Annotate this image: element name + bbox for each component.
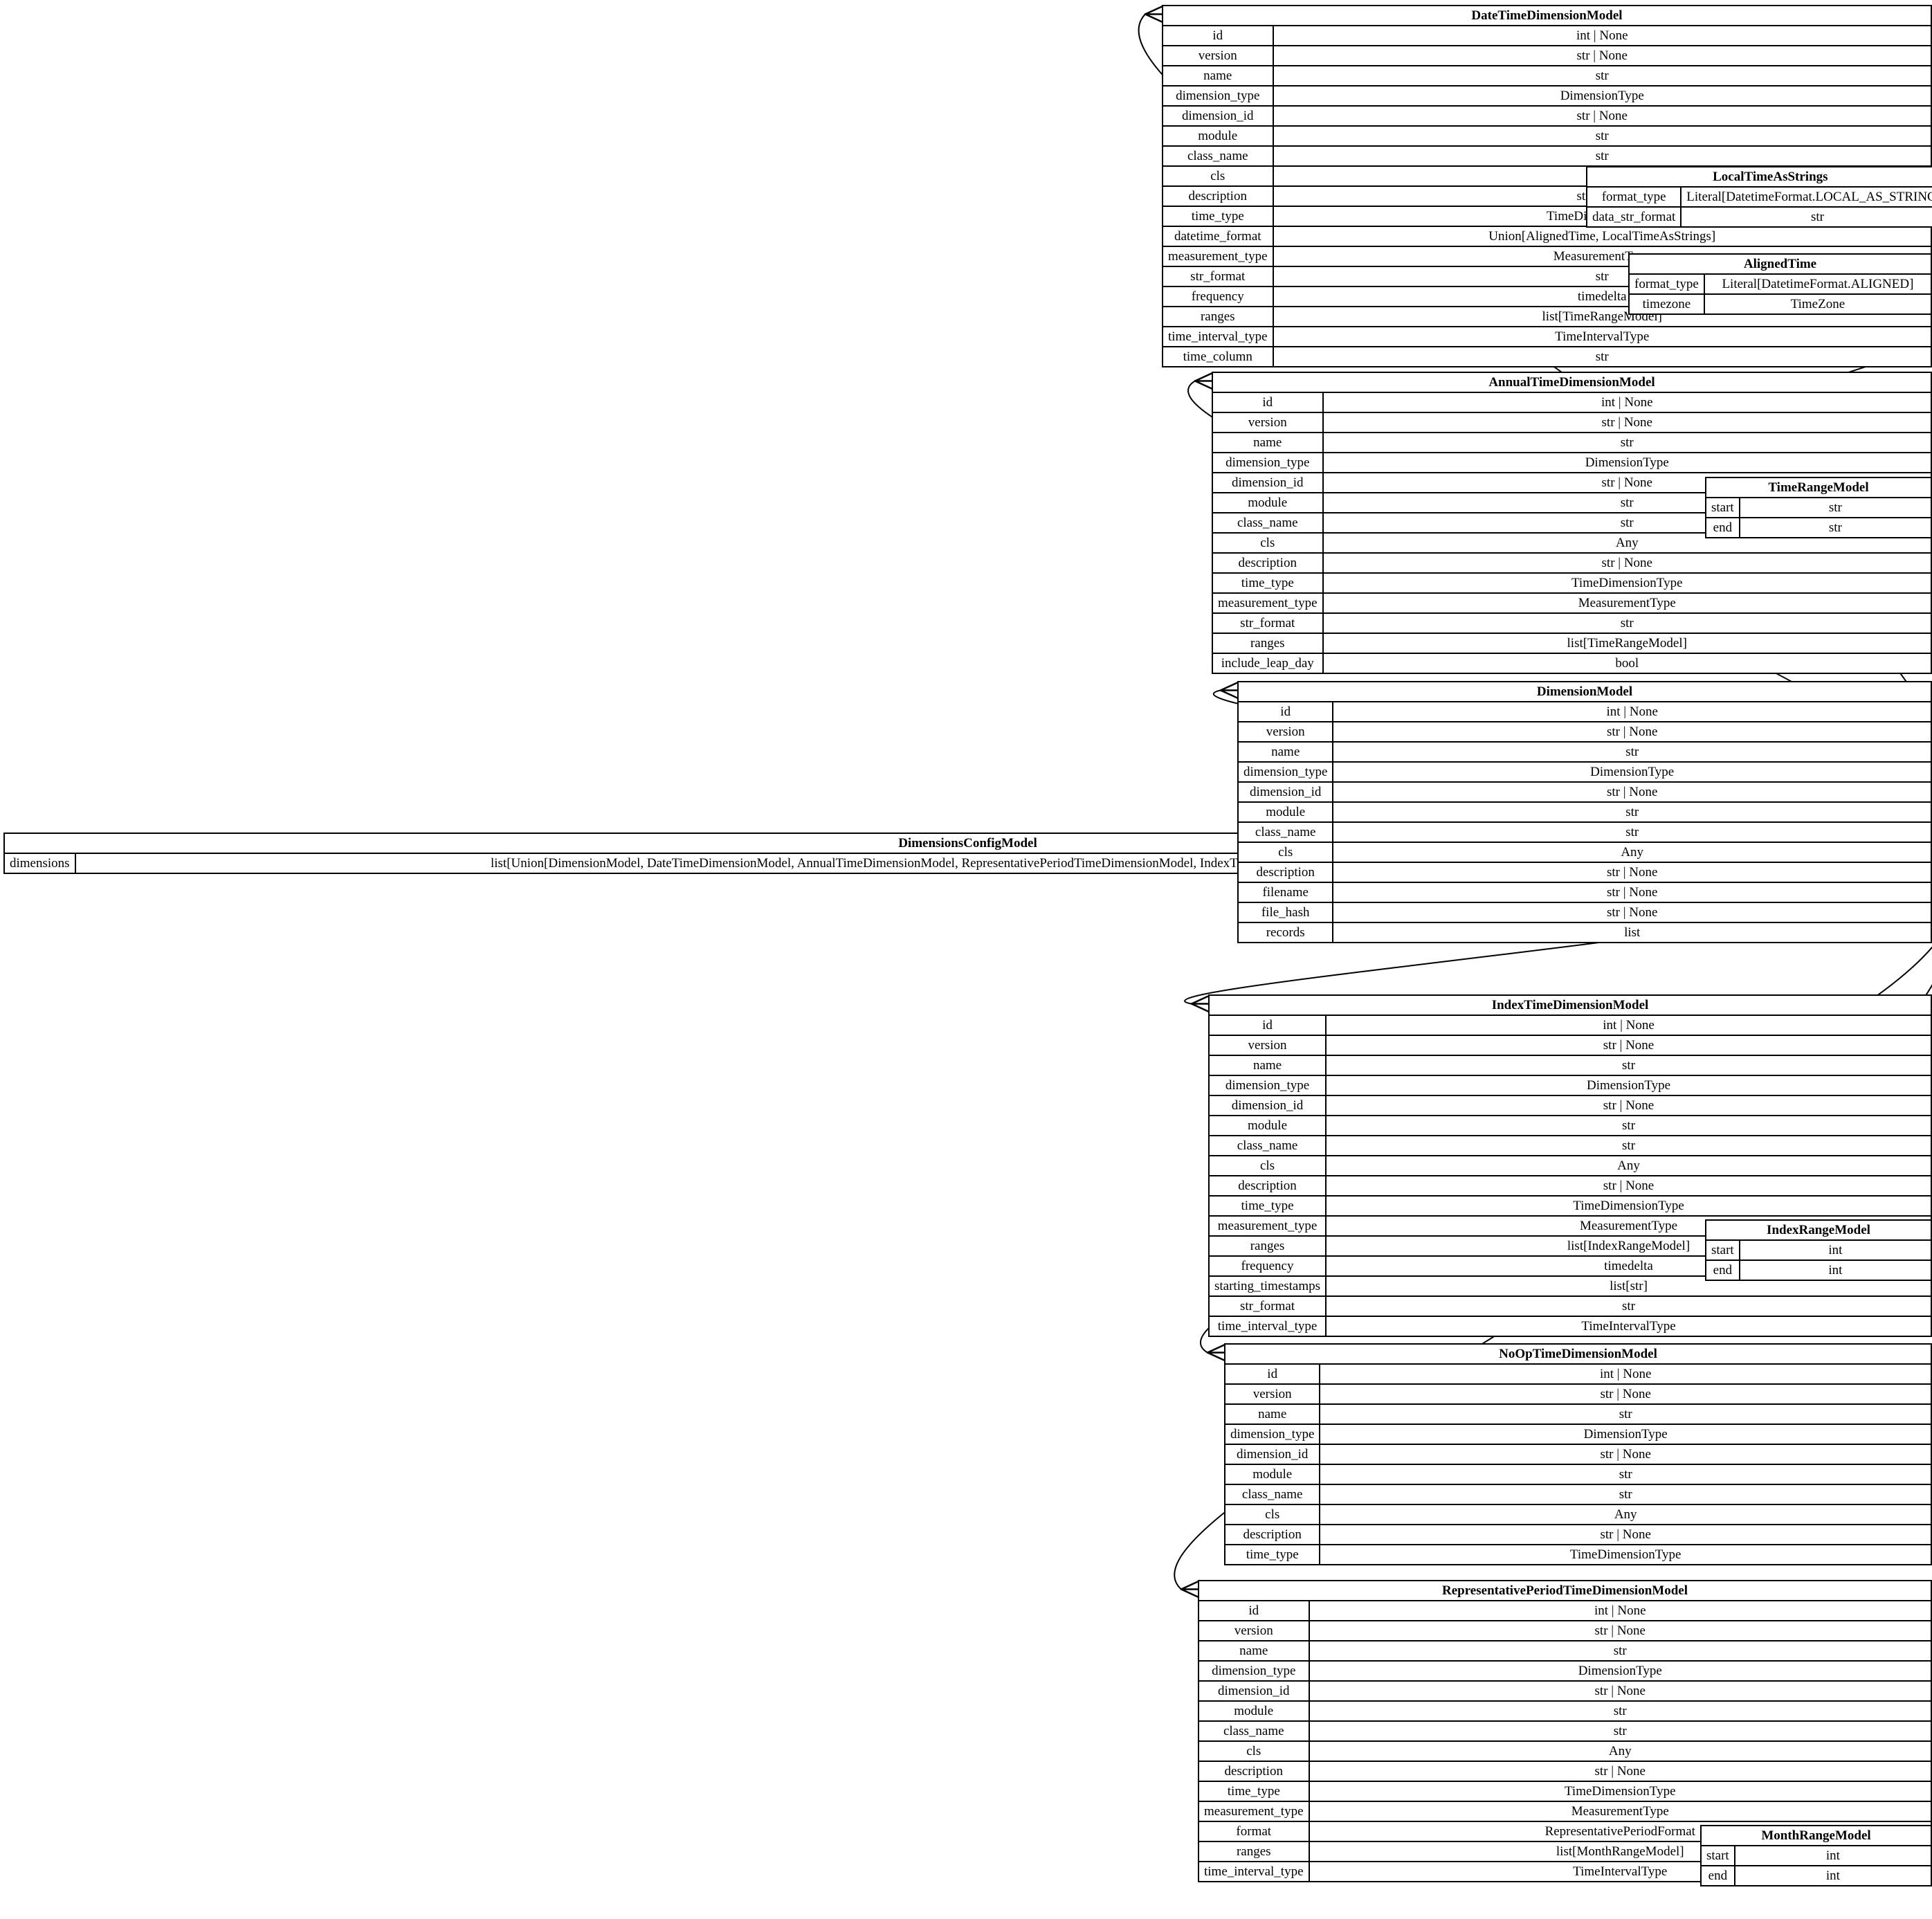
field-name: starting_timestamps [1210, 1276, 1326, 1296]
field-name: start [1706, 1240, 1740, 1260]
field-type: str | None [1333, 882, 1931, 902]
field-type: str [1320, 1404, 1931, 1424]
field-row-MonthRangeModel-start: startint [1702, 1846, 1931, 1866]
field-type: str | None [1309, 1621, 1931, 1641]
field-row-DateTimeDimensionModel-dimension_id: dimension_idstr | None [1163, 106, 1931, 126]
field-row-IndexTimeDimensionModel-module: modulestr [1210, 1116, 1931, 1136]
field-name: version [1239, 722, 1333, 742]
field-row-IndexTimeDimensionModel-dimension_type: dimension_typeDimensionType [1210, 1075, 1931, 1095]
field-name: end [1702, 1866, 1735, 1885]
table-title-AlignedTime: AlignedTime [1630, 255, 1931, 273]
table-TimeRangeModel: TimeRangeModelstartstrendstr [1705, 477, 1932, 538]
field-name: time_type [1213, 573, 1323, 593]
field-name: dimension_id [1199, 1681, 1309, 1701]
table-title-MonthRangeModel: MonthRangeModel [1702, 1826, 1931, 1845]
field-row-NoOpTimeDimensionModel-dimension_id: dimension_idstr | None [1225, 1444, 1931, 1464]
field-row-RepresentativePeriodTimeDimensionModel-cls: clsAny [1199, 1741, 1931, 1761]
crow-marker [1221, 683, 1237, 691]
field-row-DateTimeDimensionModel-version: versionstr | None [1163, 46, 1931, 66]
field-type: str [1309, 1721, 1931, 1741]
field-name: format_type [1587, 187, 1681, 207]
field-type: str | None [1320, 1384, 1931, 1404]
field-row-RepresentativePeriodTimeDimensionModel-class_name: class_namestr [1199, 1721, 1931, 1741]
crow-marker [1221, 691, 1237, 698]
field-row-RepresentativePeriodTimeDimensionModel-dimension_id: dimension_idstr | None [1199, 1681, 1931, 1701]
field-name: str_format [1213, 613, 1323, 633]
field-name: time_type [1199, 1781, 1309, 1801]
field-type: DimensionType [1320, 1424, 1931, 1444]
field-type: str [1323, 433, 1931, 453]
field-name: description [1213, 553, 1323, 573]
field-name: dimension_id [1163, 106, 1273, 126]
field-name: dimension_type [1163, 86, 1273, 106]
field-name: ranges [1210, 1236, 1326, 1256]
field-name: data_str_format [1587, 207, 1681, 226]
field-type: int [1740, 1240, 1931, 1260]
field-row-AnnualTimeDimensionModel-name: namestr [1213, 433, 1931, 453]
field-type: str [1320, 1484, 1931, 1504]
field-row-NoOpTimeDimensionModel-version: versionstr | None [1225, 1384, 1931, 1404]
field-type: TimeZone [1704, 294, 1931, 313]
field-name: time_type [1210, 1196, 1326, 1216]
field-type: Any [1320, 1504, 1931, 1525]
table-fields-TimeRangeModel: startstrendstr [1706, 497, 1931, 537]
table-LocalTimeAsStrings: LocalTimeAsStringsformat_typeLiteral[Dat… [1586, 166, 1932, 228]
table-fields-MonthRangeModel: startintendint [1702, 1845, 1931, 1885]
field-type: DimensionType [1273, 86, 1931, 106]
table-fields-IndexTimeDimensionModel: idint | Noneversionstr | Nonenamestrdime… [1210, 1015, 1931, 1336]
field-row-DimensionModel-id: idint | None [1239, 702, 1931, 722]
field-type: int [1740, 1260, 1931, 1280]
field-row-AnnualTimeDimensionModel-ranges: rangeslist[TimeRangeModel] [1213, 633, 1931, 653]
field-name: time_type [1163, 206, 1273, 226]
field-row-DateTimeDimensionModel-datetime_format: datetime_formatUnion[AlignedTime, LocalT… [1163, 226, 1931, 246]
field-type: Any [1309, 1741, 1931, 1761]
field-type: TimeIntervalType [1273, 327, 1931, 347]
field-type: str [1273, 347, 1931, 366]
field-name: time_interval_type [1199, 1862, 1309, 1881]
field-row-AnnualTimeDimensionModel-str_format: str_formatstr [1213, 613, 1931, 633]
field-row-IndexTimeDimensionModel-str_format: str_formatstr [1210, 1296, 1931, 1316]
field-type: list [1333, 922, 1931, 942]
field-row-NoOpTimeDimensionModel-cls: clsAny [1225, 1504, 1931, 1525]
field-name: version [1210, 1035, 1326, 1055]
field-name: dimension_id [1225, 1444, 1320, 1464]
table-AlignedTime: AlignedTimeformat_typeLiteral[DatetimeFo… [1628, 253, 1932, 315]
field-name: dimension_type [1213, 453, 1323, 473]
field-type: MeasurementType [1323, 593, 1931, 613]
field-name: class_name [1213, 513, 1323, 533]
field-type: DimensionType [1326, 1075, 1931, 1095]
table-NoOpTimeDimensionModel: NoOpTimeDimensionModelidint | Noneversio… [1224, 1343, 1932, 1565]
crow-marker [1181, 1582, 1198, 1590]
field-name: class_name [1225, 1484, 1320, 1504]
table-fields-NoOpTimeDimensionModel: idint | Noneversionstr | Nonenamestrdime… [1225, 1363, 1931, 1564]
field-row-RepresentativePeriodTimeDimensionModel-id: idint | None [1199, 1601, 1931, 1621]
field-name: measurement_type [1163, 246, 1273, 266]
field-row-DateTimeDimensionModel-module: modulestr [1163, 126, 1931, 146]
field-type: str | None [1320, 1444, 1931, 1464]
table-fields-DimensionModel: idint | Noneversionstr | Nonenamestrdime… [1239, 701, 1931, 942]
field-name: version [1213, 412, 1323, 433]
crow-marker [1207, 1345, 1224, 1353]
field-type: str [1273, 146, 1931, 166]
field-row-NoOpTimeDimensionModel-dimension_type: dimension_typeDimensionType [1225, 1424, 1931, 1444]
field-row-AnnualTimeDimensionModel-time_type: time_typeTimeDimensionType [1213, 573, 1931, 593]
field-row-NoOpTimeDimensionModel-time_type: time_typeTimeDimensionType [1225, 1545, 1931, 1564]
field-name: cls [1239, 842, 1333, 862]
field-type: str [1326, 1116, 1931, 1136]
field-name: module [1199, 1701, 1309, 1721]
field-type: Literal[DatetimeFormat.LOCAL_AS_STRINGS] [1681, 187, 1932, 207]
field-type: int [1735, 1846, 1931, 1866]
field-name: records [1239, 922, 1333, 942]
field-type: str [1309, 1641, 1931, 1661]
field-name: str_format [1210, 1296, 1326, 1316]
table-title-NoOpTimeDimensionModel: NoOpTimeDimensionModel [1225, 1345, 1931, 1363]
field-row-NoOpTimeDimensionModel-module: modulestr [1225, 1464, 1931, 1484]
field-name: dimension_type [1210, 1075, 1326, 1095]
field-row-RepresentativePeriodTimeDimensionModel-time_type: time_typeTimeDimensionType [1199, 1781, 1931, 1801]
field-row-NoOpTimeDimensionModel-class_name: class_namestr [1225, 1484, 1931, 1504]
field-row-AnnualTimeDimensionModel-include_leap_day: include_leap_daybool [1213, 653, 1931, 673]
field-type: str | None [1323, 412, 1931, 433]
field-type: str | None [1333, 722, 1931, 742]
field-type: int | None [1326, 1015, 1931, 1035]
field-type: int | None [1323, 392, 1931, 412]
field-row-DimensionModel-module: modulestr [1239, 802, 1931, 822]
field-type: int | None [1320, 1364, 1931, 1384]
field-name: name [1239, 742, 1333, 762]
field-row-IndexTimeDimensionModel-cls: clsAny [1210, 1156, 1931, 1176]
field-row-DateTimeDimensionModel-time_column: time_columnstr [1163, 347, 1931, 366]
field-name: class_name [1199, 1721, 1309, 1741]
field-name: cls [1225, 1504, 1320, 1525]
field-type: DimensionType [1323, 453, 1931, 473]
field-type: str | None [1320, 1525, 1931, 1545]
field-type: str [1681, 207, 1932, 226]
field-type: str | None [1326, 1035, 1931, 1055]
field-row-RepresentativePeriodTimeDimensionModel-measurement_type: measurement_typeMeasurementType [1199, 1801, 1931, 1821]
field-type: str [1333, 802, 1931, 822]
field-name: version [1163, 46, 1273, 66]
field-type: str [1333, 822, 1931, 842]
table-title-DimensionModel: DimensionModel [1239, 682, 1931, 701]
table-title-LocalTimeAsStrings: LocalTimeAsStrings [1587, 167, 1932, 186]
field-row-DateTimeDimensionModel-time_interval_type: time_interval_typeTimeIntervalType [1163, 327, 1931, 347]
field-type: DimensionType [1333, 762, 1931, 782]
field-name: datetime_format [1163, 226, 1273, 246]
table-IndexRangeModel: IndexRangeModelstartintendint [1705, 1219, 1932, 1281]
field-row-DimensionModel-version: versionstr | None [1239, 722, 1931, 742]
table-IndexTimeDimensionModel: IndexTimeDimensionModelidint | Noneversi… [1208, 994, 1932, 1337]
field-name: time_interval_type [1163, 327, 1273, 347]
table-title-RepresentativePeriodTimeDimensionModel: RepresentativePeriodTimeDimensionModel [1199, 1581, 1931, 1600]
field-row-DateTimeDimensionModel-id: idint | None [1163, 26, 1931, 46]
field-type: str [1333, 742, 1931, 762]
field-type: str | None [1273, 46, 1931, 66]
field-row-RepresentativePeriodTimeDimensionModel-dimension_type: dimension_typeDimensionType [1199, 1661, 1931, 1681]
field-row-AlignedTime-timezone: timezoneTimeZone [1630, 294, 1931, 313]
field-name: timezone [1630, 294, 1704, 313]
field-name: cls [1210, 1156, 1326, 1176]
field-row-AlignedTime-format_type: format_typeLiteral[DatetimeFormat.ALIGNE… [1630, 274, 1931, 294]
field-name: module [1239, 802, 1333, 822]
field-type: str | None [1323, 553, 1931, 573]
field-name: dimension_type [1199, 1661, 1309, 1681]
field-name: module [1163, 126, 1273, 146]
field-name: dimension_id [1239, 782, 1333, 802]
field-name: file_hash [1239, 902, 1333, 922]
field-row-NoOpTimeDimensionModel-description: descriptionstr | None [1225, 1525, 1931, 1545]
field-row-AnnualTimeDimensionModel-dimension_type: dimension_typeDimensionType [1213, 453, 1931, 473]
field-name: ranges [1163, 307, 1273, 327]
field-row-DimensionModel-records: recordslist [1239, 922, 1931, 942]
field-name: id [1210, 1015, 1326, 1035]
field-name: end [1706, 1260, 1740, 1280]
field-type: str [1740, 498, 1931, 518]
field-type: TimeDimensionType [1309, 1781, 1931, 1801]
field-row-DimensionModel-cls: clsAny [1239, 842, 1931, 862]
field-type: str | None [1326, 1176, 1931, 1196]
field-row-DateTimeDimensionModel-name: namestr [1163, 66, 1931, 86]
field-row-DimensionModel-class_name: class_namestr [1239, 822, 1931, 842]
field-name: dimension_id [1210, 1095, 1326, 1116]
field-name: measurement_type [1213, 593, 1323, 613]
field-type: str [1320, 1464, 1931, 1484]
field-type: str | None [1273, 106, 1931, 126]
field-name: filename [1239, 882, 1333, 902]
table-title-AnnualTimeDimensionModel: AnnualTimeDimensionModel [1213, 373, 1931, 392]
field-type: DimensionType [1309, 1661, 1931, 1681]
field-row-DimensionModel-name: namestr [1239, 742, 1931, 762]
field-row-LocalTimeAsStrings-data_str_format: data_str_formatstr [1587, 207, 1932, 226]
field-row-NoOpTimeDimensionModel-name: namestr [1225, 1404, 1931, 1424]
field-name: time_column [1163, 347, 1273, 366]
field-row-AnnualTimeDimensionModel-id: idint | None [1213, 392, 1931, 412]
field-row-IndexTimeDimensionModel-name: namestr [1210, 1055, 1931, 1075]
field-name: dimensions [5, 853, 75, 873]
field-type: str [1273, 126, 1931, 146]
field-name: str_format [1163, 266, 1273, 287]
field-name: id [1163, 26, 1273, 46]
field-name: end [1706, 518, 1740, 537]
field-type: str | None [1326, 1095, 1931, 1116]
field-name: module [1213, 493, 1323, 513]
field-row-IndexTimeDimensionModel-version: versionstr | None [1210, 1035, 1931, 1055]
field-row-DimensionModel-dimension_type: dimension_typeDimensionType [1239, 762, 1931, 782]
field-row-NoOpTimeDimensionModel-id: idint | None [1225, 1364, 1931, 1384]
field-name: dimension_type [1225, 1424, 1320, 1444]
field-name: description [1239, 862, 1333, 882]
field-type: int | None [1309, 1601, 1931, 1621]
crow-marker [1145, 7, 1162, 15]
crow-marker [1181, 1590, 1198, 1597]
field-type: Union[AlignedTime, LocalTimeAsStrings] [1273, 226, 1931, 246]
field-name: name [1199, 1641, 1309, 1661]
field-name: time_type [1225, 1545, 1320, 1564]
field-name: cls [1213, 533, 1323, 553]
field-name: class_name [1239, 822, 1333, 842]
field-row-LocalTimeAsStrings-format_type: format_typeLiteral[DatetimeFormat.LOCAL_… [1587, 187, 1932, 207]
field-type: str [1323, 613, 1931, 633]
field-name: name [1210, 1055, 1326, 1075]
field-name: class_name [1163, 146, 1273, 166]
crow-marker [1192, 1004, 1208, 1012]
field-row-IndexTimeDimensionModel-description: descriptionstr | None [1210, 1176, 1931, 1196]
field-type: TimeDimensionType [1323, 573, 1931, 593]
field-row-DimensionModel-dimension_id: dimension_idstr | None [1239, 782, 1931, 802]
field-type: int | None [1333, 702, 1931, 722]
field-name: start [1706, 498, 1740, 518]
field-type: str | None [1333, 902, 1931, 922]
crow-marker [1192, 997, 1208, 1004]
field-row-RepresentativePeriodTimeDimensionModel-name: namestr [1199, 1641, 1931, 1661]
table-title-TimeRangeModel: TimeRangeModel [1706, 478, 1931, 497]
field-row-DateTimeDimensionModel-dimension_type: dimension_typeDimensionType [1163, 86, 1931, 106]
field-row-IndexRangeModel-end: endint [1706, 1260, 1931, 1280]
field-name: ranges [1199, 1841, 1309, 1862]
field-type: TimeIntervalType [1326, 1316, 1931, 1336]
field-name: class_name [1210, 1136, 1326, 1156]
field-row-TimeRangeModel-end: endstr [1706, 518, 1931, 537]
field-row-AnnualTimeDimensionModel-version: versionstr | None [1213, 412, 1931, 433]
field-name: start [1702, 1846, 1735, 1866]
field-row-IndexTimeDimensionModel-id: idint | None [1210, 1015, 1931, 1035]
field-name: module [1210, 1116, 1326, 1136]
field-type: str [1326, 1296, 1931, 1316]
field-name: dimension_type [1239, 762, 1333, 782]
table-title-DateTimeDimensionModel: DateTimeDimensionModel [1163, 6, 1931, 25]
field-name: measurement_type [1199, 1801, 1309, 1821]
field-type: bool [1323, 653, 1931, 673]
field-type: str | None [1333, 782, 1931, 802]
field-name: id [1225, 1364, 1320, 1384]
field-type: str [1740, 518, 1931, 537]
field-name: id [1199, 1601, 1309, 1621]
field-name: description [1225, 1525, 1320, 1545]
field-row-AnnualTimeDimensionModel-measurement_type: measurement_typeMeasurementType [1213, 593, 1931, 613]
field-type: Literal[DatetimeFormat.ALIGNED] [1704, 274, 1931, 294]
field-type: str [1326, 1055, 1931, 1075]
field-type: int | None [1273, 26, 1931, 46]
table-title-IndexRangeModel: IndexRangeModel [1706, 1221, 1931, 1239]
field-name: frequency [1210, 1256, 1326, 1276]
field-name: frequency [1163, 287, 1273, 307]
table-title-IndexTimeDimensionModel: IndexTimeDimensionModel [1210, 996, 1931, 1015]
field-type: Any [1333, 842, 1931, 862]
field-row-MonthRangeModel-end: endint [1702, 1866, 1931, 1885]
table-fields-IndexRangeModel: startintendint [1706, 1239, 1931, 1280]
table-MonthRangeModel: MonthRangeModelstartintendint [1700, 1825, 1932, 1886]
field-name: measurement_type [1210, 1216, 1326, 1236]
field-row-RepresentativePeriodTimeDimensionModel-description: descriptionstr | None [1199, 1761, 1931, 1781]
crow-marker [1195, 374, 1212, 381]
crow-marker [1195, 381, 1212, 389]
table-fields-AlignedTime: format_typeLiteral[DatetimeFormat.ALIGNE… [1630, 273, 1931, 313]
field-name: time_interval_type [1210, 1316, 1326, 1336]
field-row-DateTimeDimensionModel-class_name: class_namestr [1163, 146, 1931, 166]
field-row-IndexTimeDimensionModel-dimension_id: dimension_idstr | None [1210, 1095, 1931, 1116]
field-type: str | None [1309, 1761, 1931, 1781]
field-row-RepresentativePeriodTimeDimensionModel-module: modulestr [1199, 1701, 1931, 1721]
field-type: TimeDimensionType [1326, 1196, 1931, 1216]
field-name: id [1213, 392, 1323, 412]
field-name: module [1225, 1464, 1320, 1484]
field-row-IndexTimeDimensionModel-class_name: class_namestr [1210, 1136, 1931, 1156]
field-row-IndexTimeDimensionModel-time_type: time_typeTimeDimensionType [1210, 1196, 1931, 1216]
field-name: include_leap_day [1213, 653, 1323, 673]
field-name: id [1239, 702, 1333, 722]
field-type: TimeDimensionType [1320, 1545, 1931, 1564]
table-DimensionModel: DimensionModelidint | Noneversionstr | N… [1237, 681, 1932, 943]
field-name: description [1199, 1761, 1309, 1781]
field-name: name [1213, 433, 1323, 453]
field-name: cls [1199, 1741, 1309, 1761]
field-name: description [1163, 186, 1273, 206]
field-row-DimensionModel-file_hash: file_hashstr | None [1239, 902, 1931, 922]
field-type: int [1735, 1866, 1931, 1885]
table-fields-LocalTimeAsStrings: format_typeLiteral[DatetimeFormat.LOCAL_… [1587, 186, 1932, 226]
field-name: dimension_id [1213, 473, 1323, 493]
crow-marker [1145, 15, 1162, 22]
field-row-DimensionModel-description: descriptionstr | None [1239, 862, 1931, 882]
field-name: name [1225, 1404, 1320, 1424]
field-row-TimeRangeModel-start: startstr [1706, 498, 1931, 518]
field-name: version [1199, 1621, 1309, 1641]
field-type: Any [1326, 1156, 1931, 1176]
field-type: MeasurementType [1309, 1801, 1931, 1821]
field-name: ranges [1213, 633, 1323, 653]
field-name: name [1163, 66, 1273, 86]
field-name: format_type [1630, 274, 1704, 294]
field-name: cls [1163, 166, 1273, 186]
field-row-IndexRangeModel-start: startint [1706, 1240, 1931, 1260]
field-type: list[TimeRangeModel] [1323, 633, 1931, 653]
field-type: str [1326, 1136, 1931, 1156]
field-row-IndexTimeDimensionModel-time_interval_type: time_interval_typeTimeIntervalType [1210, 1316, 1931, 1336]
field-type: str [1309, 1701, 1931, 1721]
diagram-canvas: DimensionsConfigModeldimensionslist[Unio… [0, 0, 1932, 1919]
field-name: version [1225, 1384, 1320, 1404]
field-type: str | None [1309, 1681, 1931, 1701]
field-type: str | None [1333, 862, 1931, 882]
field-row-DimensionModel-filename: filenamestr | None [1239, 882, 1931, 902]
field-name: format [1199, 1821, 1309, 1841]
field-type: str [1273, 66, 1931, 86]
field-name: description [1210, 1176, 1326, 1196]
field-row-AnnualTimeDimensionModel-description: descriptionstr | None [1213, 553, 1931, 573]
field-row-RepresentativePeriodTimeDimensionModel-version: versionstr | None [1199, 1621, 1931, 1641]
crow-marker [1207, 1353, 1224, 1361]
